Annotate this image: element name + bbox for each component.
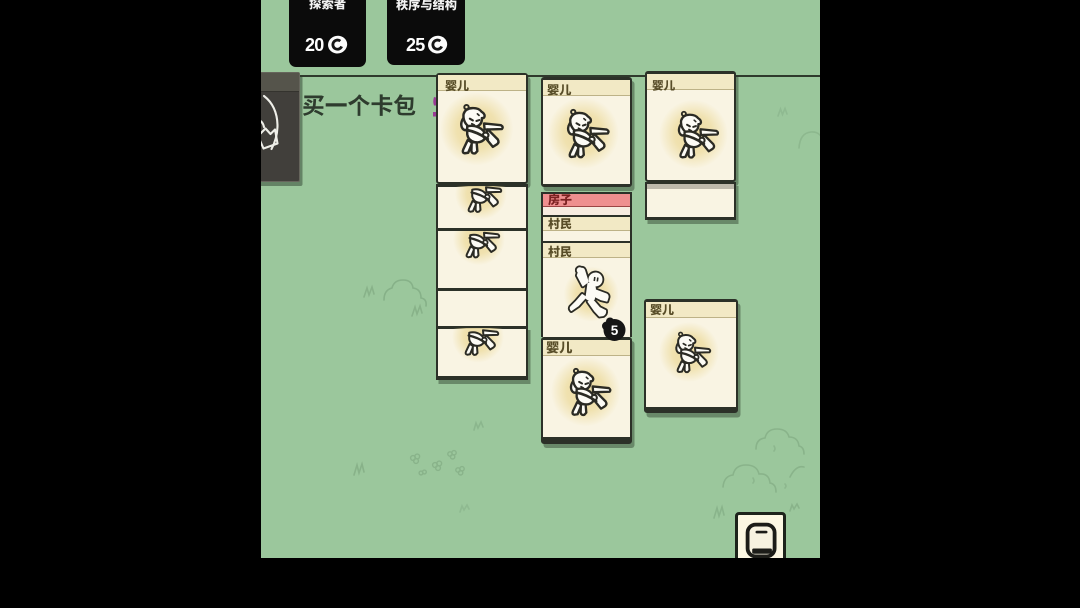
svg-text:5: 5 xyxy=(611,323,619,338)
